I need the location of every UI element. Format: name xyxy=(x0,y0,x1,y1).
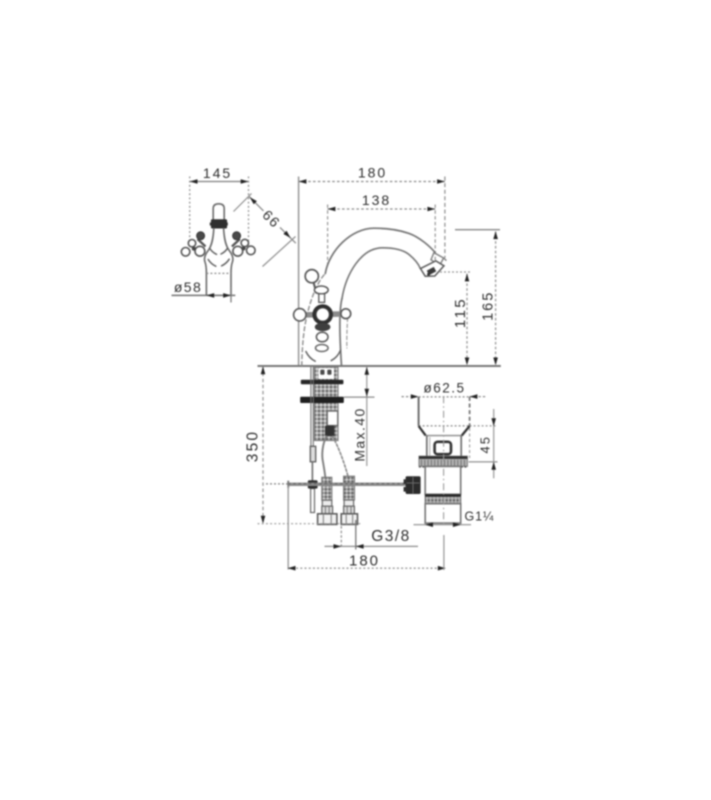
svg-text:G1¼: G1¼ xyxy=(465,509,495,523)
svg-text:ø62.5: ø62.5 xyxy=(423,381,465,396)
svg-text:165: 165 xyxy=(481,291,497,321)
svg-text:115: 115 xyxy=(452,297,469,328)
svg-text:180: 180 xyxy=(358,164,387,180)
svg-text:145: 145 xyxy=(203,165,232,181)
svg-text:Max.40: Max.40 xyxy=(352,407,368,461)
svg-text:138: 138 xyxy=(362,192,391,208)
svg-text:ø58: ø58 xyxy=(174,279,202,295)
svg-text:45: 45 xyxy=(478,435,493,453)
svg-text:G3/8: G3/8 xyxy=(371,528,411,545)
svg-text:180: 180 xyxy=(349,552,380,569)
svg-text:350: 350 xyxy=(245,430,262,462)
